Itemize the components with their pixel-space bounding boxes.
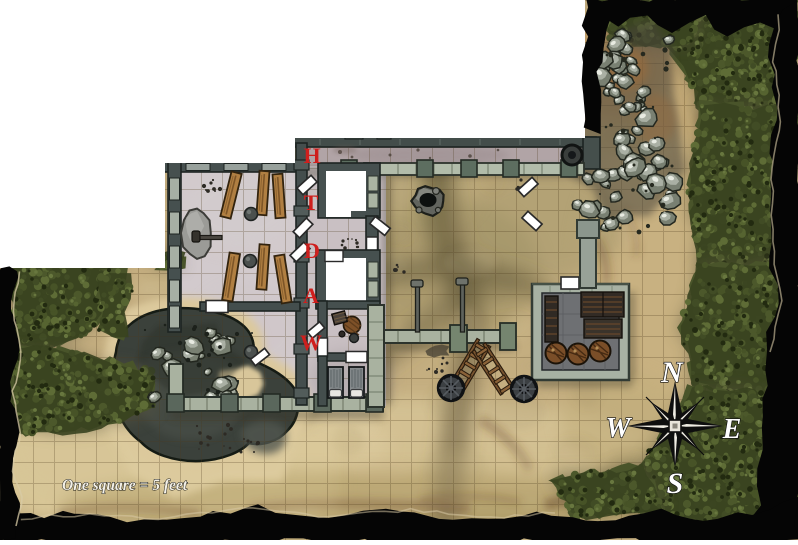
- svg-text:A: A: [303, 283, 319, 308]
- svg-text:D: D: [304, 238, 320, 263]
- svg-text:E: E: [722, 414, 742, 445]
- svg-text:W: W: [300, 330, 322, 355]
- svg-text:N: N: [660, 356, 684, 389]
- svg-text:W: W: [606, 413, 633, 444]
- svg-text:T: T: [304, 190, 319, 215]
- svg-text:One square = 5 feet: One square = 5 feet: [62, 477, 188, 494]
- svg-text:S: S: [667, 467, 684, 500]
- svg-text:H: H: [303, 143, 320, 168]
